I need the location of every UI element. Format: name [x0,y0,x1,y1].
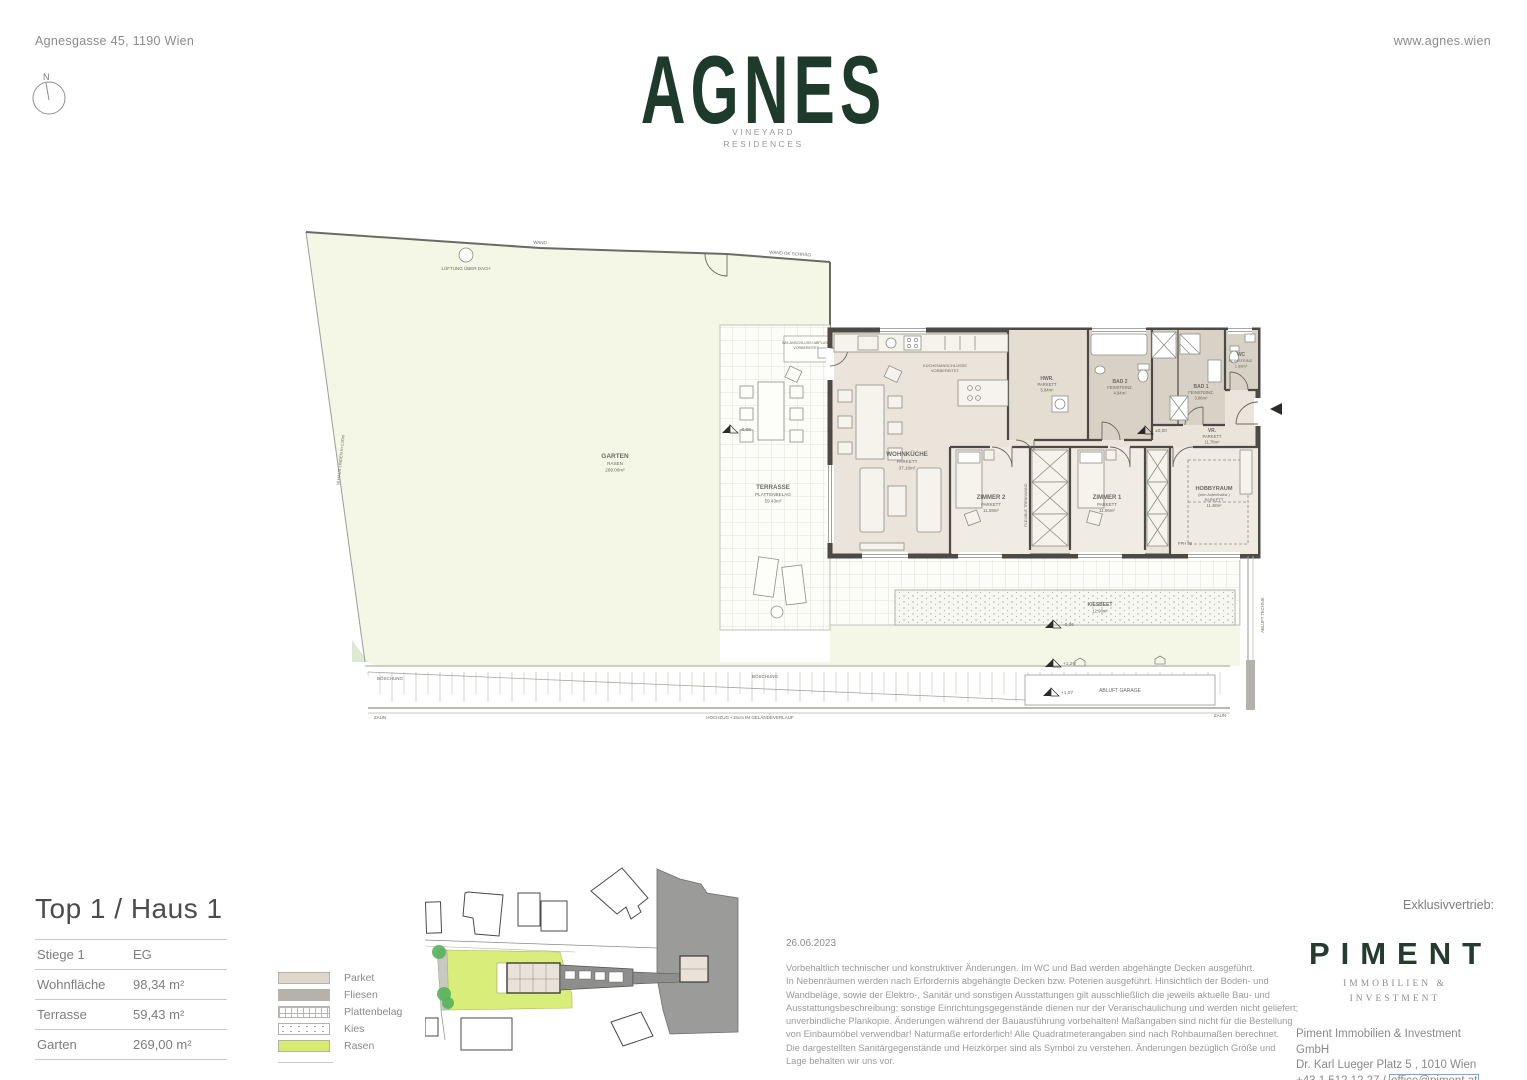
row-label: Wohnfläche [37,977,133,992]
room-bad2-material: FEINSTEINZ. [1107,385,1133,390]
level-garage-bottom: +1,07 [1061,690,1073,696]
garden-strip-south [830,625,1240,666]
entrance-arrow-icon [1270,403,1282,415]
room-garten: GARTEN [601,453,629,460]
legend-label: Plattenbelag [344,1006,402,1018]
wardrobe-zimmer2 [1032,450,1068,546]
note-abluft-technik: ABLUFT TECHNIK [1260,597,1265,633]
room-kiesbeet: KIESBEET [1087,602,1112,608]
piment-sub-line2: INVESTMENT [1296,992,1494,1007]
room-hobbyraum-note: (kein Aufenthaltsr.) [1198,493,1230,497]
table-row: Stiege 1 EG [35,939,227,969]
room-hobbyraum-area: 11.48m² [1206,503,1222,508]
piment-logo: PIMENT [1296,938,1505,969]
label-hochzug: HOCHZUG +15cm IM GELÄNDEVERLAUF [706,714,794,720]
room-zimmer2: ZIMMER 2 [977,495,1006,501]
room-zimmer2-area: 11.08m² [983,508,999,513]
legend-label: Rasen [344,1040,374,1052]
neighbor-house [611,1012,653,1046]
disclaimer-text: Vorbehaltlich technischer und konstrukti… [786,962,1346,1068]
kies-swatch-icon [278,1023,330,1035]
technik-strip [1246,660,1255,710]
row-label: Garten [37,1037,133,1052]
site-location-map [425,860,780,1078]
contact-phone: +43 1 512 12 27 / [1296,1075,1389,1080]
room-wc-material: FEINSTEINZ. [1229,358,1253,363]
legend-item: Rasen [278,1039,402,1052]
room-garten-area: 269.00m² [605,468,625,473]
legend-item: Kies [278,1022,402,1035]
piment-logo-subtitle: IMMOBILIEN & INVESTMENT [1296,977,1494,1007]
table-row: Terrasse 59,43 m² [35,999,227,1029]
floor-plan: WM-ANSCHLUSS+ABFLUSS VORBEREITET [290,210,1290,740]
room-terrasse: TERRASSE [756,484,790,491]
room-zimmer2-material: PARKETT [981,502,1001,507]
neighbor-house [463,892,503,936]
room-bad1-material: FEINSTEINZ. [1188,390,1214,395]
label-wand-schraeg: WAND OK SCHRÄG [769,249,812,258]
rasen-swatch-icon [278,1040,330,1052]
level-kies: -0,06 [1063,622,1074,628]
note-flexible-trennwand: FLEXIBLE TRENNWAND [1024,483,1028,527]
table-row: Garten 269,00 m² [35,1029,227,1060]
plan-page: Agnesgasse 45, 1190 Wien www.agnes.wien … [0,0,1527,1080]
row-value: 59,43 m² [133,1007,184,1022]
neighbor-house [425,1018,438,1036]
wm-note-line2: VORBEREITET [793,346,819,350]
legend-label: Kies [344,1023,364,1035]
unit-info-table: Stiege 1 EG Wohnfläche 98,34 m² Terrasse… [35,939,227,1060]
plattenbelag-swatch-icon [278,1006,330,1018]
room-hwr-area: 5.84m² [1040,388,1054,393]
legend-item: Fliesen [278,988,402,1001]
note-kueche-line2: VORBEREITET [931,368,960,373]
level-terrasse: -0,08 [740,427,751,433]
exklusivvertrieb-label: Exklusivvertrieb: [1296,898,1494,912]
room-garten-material: RASEN [607,461,623,466]
room-hobbyraum-material: PARKETT [1204,498,1223,503]
contact-info: Piment Immobilien & Investment GmbH Dr. … [1296,1027,1494,1080]
room-vr-area: 11.78m² [1204,440,1220,445]
unit-info-panel: Top 1 / Haus 1 Stiege 1 EG Wohnfläche 98… [35,893,235,1060]
legend-item: Plattenbelag [278,1005,402,1018]
kitchen-counter [834,334,1008,352]
table-row: Wohnfläche 98,34 m² [35,969,227,999]
logo-subtitle-line1: VINEYARD [0,126,1527,138]
row-value: 98,34 m² [133,977,184,992]
piment-sub-line1: IMMOBILIEN & [1296,977,1494,992]
note-abluft-garage: ABLUFT GARAGE [1099,688,1142,694]
label-boeschung-left: BÖSCHUNG [377,675,404,681]
neighbor-house [541,901,567,931]
label-boeschung-right: BÖSCHUNG [752,673,779,679]
logo-subtitle: VINEYARD RESIDENCES [0,126,1527,151]
level-garage-top: +1,29 [1063,661,1075,667]
level-eg: ±0,00 [1155,428,1167,434]
unit-building-mini [507,963,560,993]
room-bad2-area: 4.94m² [1113,391,1127,396]
fliesen-swatch-icon [278,989,330,1001]
plan-date: 26.06.2023 [786,938,836,949]
contact-company: Piment Immobilien & Investment GmbH [1296,1027,1494,1058]
room-wohnkueche-material: PARKETT [897,459,918,464]
legend-item: Parket [278,971,402,984]
room-zimmer1: ZIMMER 1 [1093,495,1122,501]
agnes-logo: AGNES [0,44,1527,106]
row-label: Stiege 1 [37,947,133,962]
unit-title: Top 1 / Haus 1 [35,893,235,925]
neighbor-house [591,868,648,919]
tree-icon [442,997,454,1009]
tree-icon [432,945,446,959]
neighbor-house [518,893,540,926]
contact-address: Dr. Karl Lueger Platz 5 , 1010 Wien [1296,1058,1494,1074]
roof-vent-icon [459,248,473,262]
wm-connection-note: WM-ANSCHLUSS+ABFLUSS VORBEREITET [782,336,831,362]
neighbor-house [461,1018,512,1050]
material-legend: Parket Fliesen Plattenbelag Kies Rasen [278,971,402,1063]
room-hobbyraum: HOBBYRAUM [1196,486,1233,492]
contact-phone-line: +43 1 512 12 27 / office@piment.at [1296,1074,1494,1080]
room-wohnkueche-area: 37.16m² [899,466,916,471]
row-value: EG [133,947,152,962]
room-wc-area: 1.88m² [1235,364,1248,369]
room-zimmer1-area: 11.06m² [1099,508,1115,513]
room-kiesbeet-area: 12.98m² [1092,609,1108,614]
room-hwr-material: PARKETT [1037,382,1056,387]
neighbor-house [425,902,441,934]
street-line [425,940,657,948]
row-value: 269,00 m² [133,1037,192,1052]
label-zaun-left: ZAUN [374,715,386,720]
room-zimmer1-material: PARKETT [1097,502,1117,507]
label-wand: WAND [533,240,547,245]
room-bad1-area: 3.86m² [1194,396,1208,401]
gravel-bed [895,590,1235,625]
boundary-line [441,1010,445,1040]
room-wohnkueche: WOHNKÜCHE [886,451,928,458]
label-zaun-right: ZAUN [1214,713,1226,718]
room-vr-material: PARKETT [1202,434,1221,439]
legend-label: Fliesen [344,989,378,1001]
label-lueftung: LÜFTUNG ÜBER DACH [441,265,490,271]
room-terrasse-material: PLATTENBELAG [755,492,791,497]
logo-subtitle-line2: RESIDENCES [0,138,1527,150]
room-terrasse-area: 59.43m² [765,499,782,504]
wm-note-line1: WM-ANSCHLUSS+ABFLUSS [782,341,831,345]
legend-divider [278,1062,333,1063]
corridor-mini [633,972,680,984]
note-fph90: FPH 90 [1178,541,1193,546]
kitchen-island [958,380,1008,406]
parket-swatch-icon [278,972,330,984]
wardrobe-zimmer1 [1147,450,1168,546]
legend-label: Parket [344,972,374,984]
unit-terrace-mini [497,963,507,993]
email-link[interactable]: office@piment.at [1389,1074,1479,1080]
row-label: Terrasse [37,1007,133,1022]
project-site-gray [657,869,738,1034]
distributor-block: Exklusivvertrieb: PIMENT IMMOBILIEN & IN… [1296,898,1494,1080]
